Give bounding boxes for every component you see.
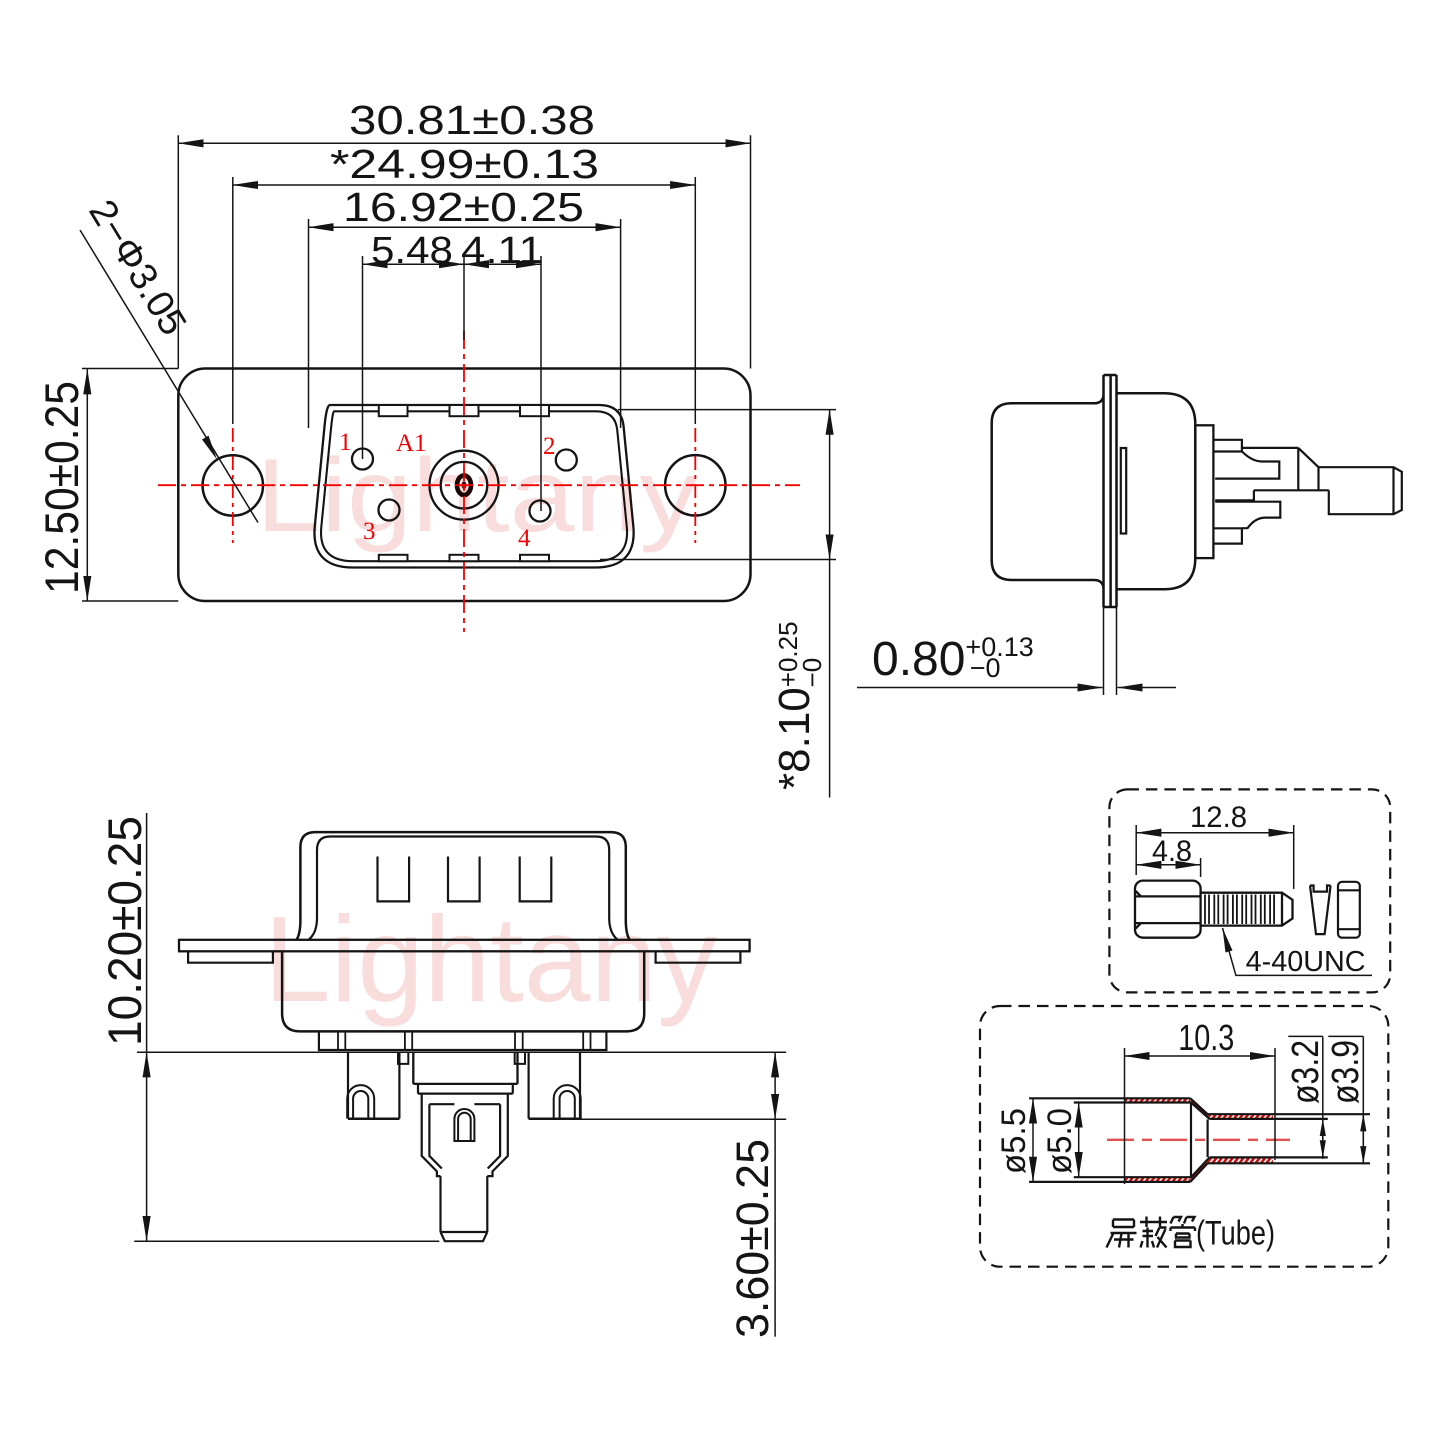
svg-text:ø5.5: ø5.5 — [995, 1108, 1033, 1174]
svg-text:4.11: 4.11 — [461, 230, 543, 272]
svg-text:4-40UNC: 4-40UNC — [1246, 946, 1366, 978]
svg-text:12.50±0.25: 12.50±0.25 — [35, 381, 88, 594]
svg-text:4: 4 — [518, 525, 531, 552]
svg-text:4.8: 4.8 — [1152, 835, 1192, 868]
svg-text:ø5.0: ø5.0 — [1041, 1108, 1079, 1174]
svg-text:1: 1 — [339, 429, 352, 456]
svg-text:30.81±0.38: 30.81±0.38 — [349, 97, 595, 143]
svg-text:12.8: 12.8 — [1190, 801, 1247, 834]
svg-text:ø3.9: ø3.9 — [1325, 1040, 1367, 1104]
svg-text:10.3: 10.3 — [1178, 1017, 1234, 1058]
svg-text:A1: A1 — [396, 430, 427, 457]
svg-text:2: 2 — [543, 433, 556, 460]
svg-text:16.92±0.25: 16.92±0.25 — [343, 184, 584, 230]
svg-text:(Tube): (Tube) — [1196, 1215, 1275, 1253]
svg-text:3.60±0.25: 3.60±0.25 — [727, 1139, 778, 1338]
svg-text:ø3.2: ø3.2 — [1285, 1040, 1327, 1104]
svg-text:*24.99±0.13: *24.99±0.13 — [330, 141, 599, 187]
svg-text:3: 3 — [363, 518, 376, 545]
svg-text:5.48: 5.48 — [371, 230, 453, 272]
svg-text:10.20±0.25: 10.20±0.25 — [98, 816, 151, 1046]
svg-text:Lightany: Lightany — [264, 891, 717, 1027]
